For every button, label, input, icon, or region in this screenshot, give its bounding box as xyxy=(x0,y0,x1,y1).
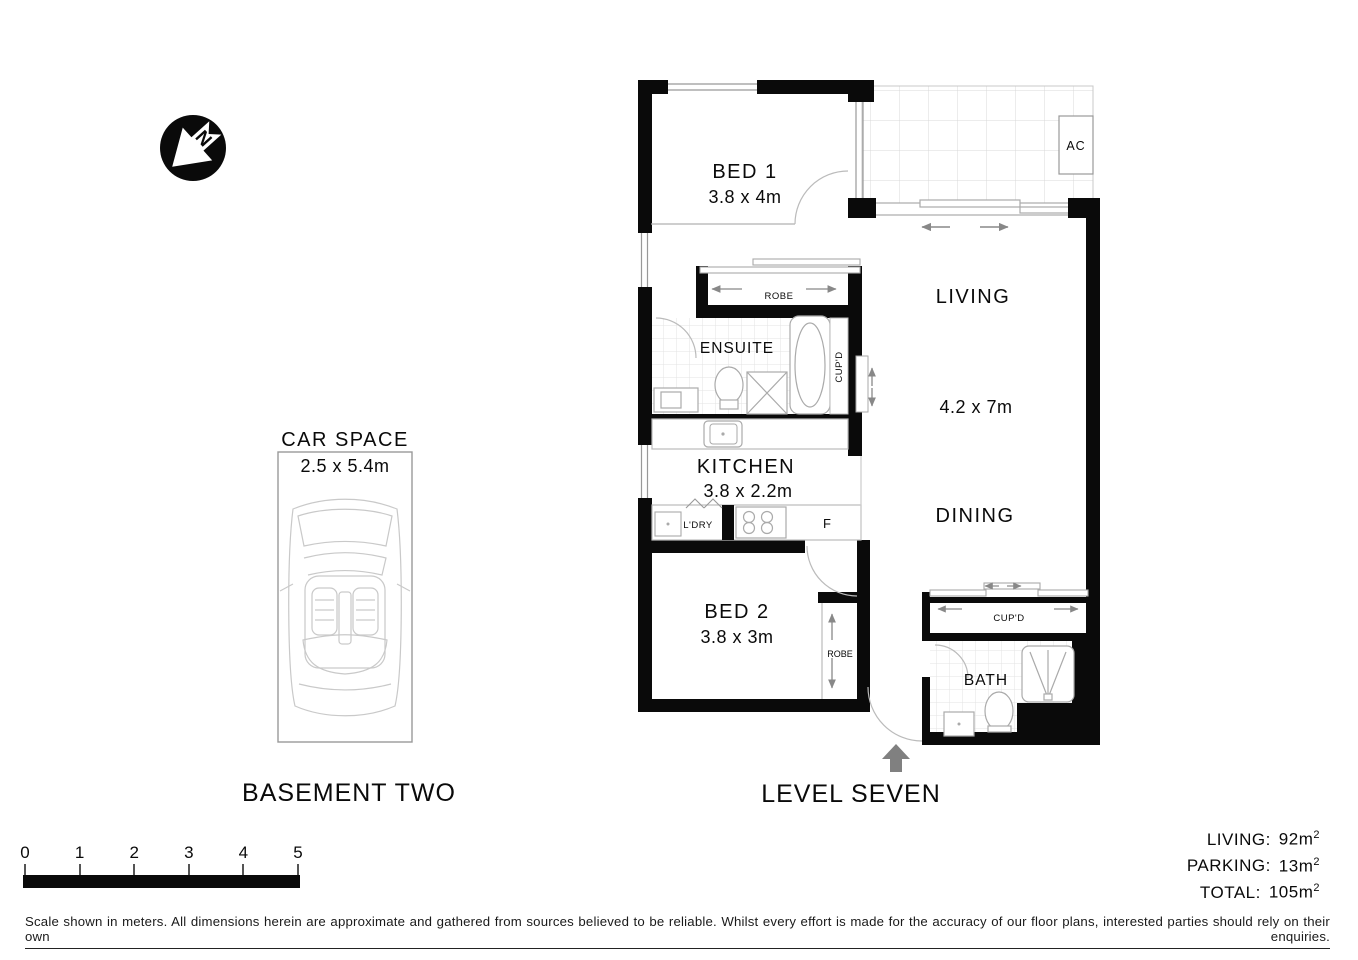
scale-tick-label: 5 xyxy=(293,843,302,863)
robe-bed1: ROBE xyxy=(700,259,860,302)
scale-tick xyxy=(297,864,299,875)
level-title: LEVEL SEVEN xyxy=(761,780,941,808)
scale-bar: 0 1 2 3 4 5 xyxy=(25,843,298,891)
ensuite: ENSUITE CUP'D xyxy=(652,316,872,414)
robe-bed1-label: ROBE xyxy=(765,291,794,302)
area-living: LIVING:92m2 xyxy=(1187,824,1320,851)
area-parking-label: PARKING: xyxy=(1187,856,1271,875)
scale-tick-label: 4 xyxy=(239,843,248,863)
kitchen-dimensions: 3.8 x 2.2m xyxy=(703,481,792,501)
scale-tick xyxy=(79,864,81,875)
bed1-label: BED 1 xyxy=(712,161,777,183)
living-dimensions: 4.2 x 7m xyxy=(939,397,1012,417)
basement-title: BASEMENT TWO xyxy=(242,779,456,807)
kitchen-label: KITCHEN xyxy=(697,456,795,478)
area-total-label: TOTAL: xyxy=(1200,883,1261,902)
scale-tick-label: 3 xyxy=(184,843,193,863)
floorplan-page: N CAR SPACE 2.5 x 5.4m AC xyxy=(0,0,1358,960)
kitchen: KITCHEN 3.8 x 2.2m L'DRY F xyxy=(652,419,861,540)
hall-cupboard-label: CUP'D xyxy=(834,351,845,382)
floorplan-drawing: N CAR SPACE 2.5 x 5.4m AC xyxy=(0,0,1358,960)
entry-arrow xyxy=(882,744,910,772)
hall-cupboard-slot xyxy=(856,356,868,412)
ac-label: AC xyxy=(1066,139,1085,153)
balcony-tiles xyxy=(862,86,1093,205)
scale-tick-label: 1 xyxy=(75,843,84,863)
bed1-dimensions: 3.8 x 4m xyxy=(708,187,781,207)
car-space-dimensions: 2.5 x 5.4m xyxy=(300,456,389,476)
kitchen-bench xyxy=(652,419,848,449)
ensuite-toilet xyxy=(715,367,743,403)
fridge-label: F xyxy=(823,516,831,531)
scale-tick xyxy=(188,864,190,875)
car-space-title: CAR SPACE xyxy=(281,429,409,451)
balcony: AC xyxy=(862,86,1093,227)
bed2-label: BED 2 xyxy=(704,601,769,623)
laundry-label: L'DRY xyxy=(683,520,713,531)
scale-tick-label: 0 xyxy=(20,843,29,863)
bed1: BED 1 3.8 x 4m xyxy=(651,161,848,224)
car-space-outline xyxy=(278,452,412,742)
entry-door-arc xyxy=(868,687,922,741)
car-space: CAR SPACE 2.5 x 5.4m xyxy=(278,429,412,742)
bed2: BED 2 3.8 x 3m ROBE xyxy=(700,546,857,699)
scale-tick-label: 2 xyxy=(129,843,138,863)
robe-bed2-label: ROBE xyxy=(827,649,853,659)
scale-tick xyxy=(133,864,135,875)
area-total: TOTAL:105m2 xyxy=(1187,877,1320,904)
living-label: LIVING xyxy=(936,286,1011,308)
scale-tick xyxy=(242,864,244,875)
area-living-label: LIVING: xyxy=(1207,830,1271,849)
disclaimer-text: Scale shown in meters. All dimensions he… xyxy=(25,914,1330,949)
car-illustration xyxy=(280,499,410,716)
north-arrow: N xyxy=(157,112,230,184)
cupboard-dining-label: CUP'D xyxy=(993,613,1024,624)
area-parking-value: 13m xyxy=(1279,856,1314,875)
living-dining: LIVING 4.2 x 7m DINING xyxy=(936,286,1015,527)
bed2-door-arc xyxy=(807,546,857,596)
entry xyxy=(868,687,922,772)
bath-label: BATH xyxy=(964,672,1008,689)
scale-bar-rule xyxy=(23,875,300,888)
area-living-value: 92m xyxy=(1279,830,1314,849)
cupboard-dining: CUP'D xyxy=(930,583,1088,624)
ensuite-label: ENSUITE xyxy=(700,340,774,357)
dining-label: DINING xyxy=(936,505,1015,527)
scale-tick xyxy=(24,864,26,875)
bed2-dimensions: 3.8 x 3m xyxy=(700,627,773,647)
bath: BATH xyxy=(930,641,1075,736)
bed1-door-arc xyxy=(795,171,848,224)
bath-toilet xyxy=(985,692,1013,730)
area-total-value: 105m xyxy=(1269,883,1314,902)
area-summary: LIVING:92m2 PARKING:13m2 TOTAL:105m2 xyxy=(1187,824,1320,904)
area-parking: PARKING:13m2 xyxy=(1187,851,1320,878)
